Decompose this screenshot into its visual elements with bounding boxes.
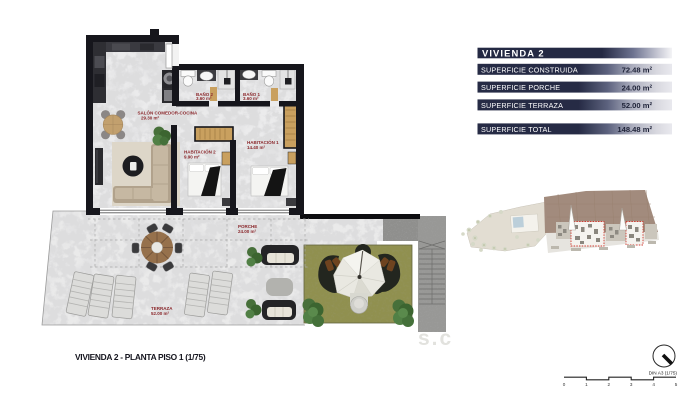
svg-text:SALÓN COMEDOR-COCINA: SALÓN COMEDOR-COCINA <box>138 109 198 116</box>
svg-text:VIVIENDA 2: VIVIENDA 2 <box>482 48 545 59</box>
svg-text:14.40 m²: 14.40 m² <box>247 145 266 150</box>
svg-text:SUPERFICIE TERRAZA: SUPERFICIE TERRAZA <box>481 101 563 110</box>
svg-text:SUPERFICIE PORCHE: SUPERFICIE PORCHE <box>481 83 560 92</box>
svg-text:HABITACIÓN 2: HABITACIÓN 2 <box>184 148 216 155</box>
svg-text:DIN A3 (1/75): DIN A3 (1/75) <box>649 371 678 376</box>
svg-text:0: 0 <box>563 382 566 387</box>
svg-text:5: 5 <box>675 382 678 387</box>
svg-text:s.c: s.c <box>418 327 453 350</box>
svg-text:3.60 m²: 3.60 m² <box>243 96 259 101</box>
svg-text:52.00 m²: 52.00 m² <box>622 101 653 110</box>
svg-text:1: 1 <box>585 382 588 387</box>
svg-text:SUPERFICIE TOTAL: SUPERFICIE TOTAL <box>481 125 552 134</box>
svg-text:3: 3 <box>630 382 633 387</box>
svg-text:HABITACIÓN 1: HABITACIÓN 1 <box>247 138 279 145</box>
svg-text:24.00 m²: 24.00 m² <box>238 229 257 234</box>
svg-text:52.00 m²: 52.00 m² <box>151 311 170 316</box>
svg-text:2: 2 <box>608 382 611 387</box>
svg-text:4: 4 <box>652 382 655 387</box>
svg-text:72.48 m²: 72.48 m² <box>622 66 653 75</box>
svg-text:29.30 m²: 29.30 m² <box>141 116 160 121</box>
svg-text:148.48 m²: 148.48 m² <box>617 125 652 134</box>
svg-text:3.60 m²: 3.60 m² <box>196 96 212 101</box>
svg-text:24.00 m²: 24.00 m² <box>622 83 653 92</box>
svg-text:SUPERFICIE CONSTRUIDA: SUPERFICIE CONSTRUIDA <box>481 65 578 74</box>
svg-text:9.90 m²: 9.90 m² <box>184 155 200 160</box>
svg-text:VIVIENDA 2 - PLANTA PISO 1 (1/: VIVIENDA 2 - PLANTA PISO 1 (1/75) <box>75 352 206 362</box>
